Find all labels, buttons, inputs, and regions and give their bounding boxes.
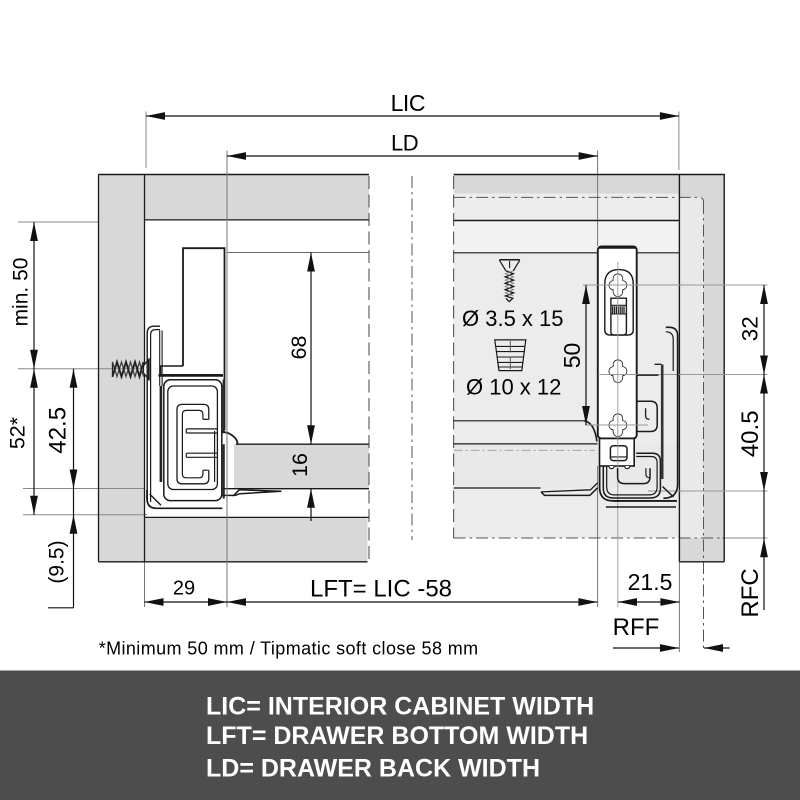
svg-text:(9.5): (9.5) bbox=[45, 540, 68, 583]
svg-text:42.5: 42.5 bbox=[44, 407, 71, 454]
svg-text:LIC= INTERIOR CABINET WIDTH: LIC= INTERIOR CABINET WIDTH bbox=[206, 692, 594, 720]
svg-text:32: 32 bbox=[737, 316, 762, 341]
svg-text:Ø 3.5 x 15: Ø 3.5 x 15 bbox=[462, 306, 564, 331]
svg-text:50: 50 bbox=[559, 343, 585, 369]
svg-text:52*: 52* bbox=[6, 416, 30, 449]
svg-text:LFT= DRAWER BOTTOM WIDTH: LFT= DRAWER BOTTOM WIDTH bbox=[206, 722, 588, 750]
svg-text:LIC: LIC bbox=[391, 90, 425, 116]
svg-text:*Minimum 50 mm / Tipmatic soft: *Minimum 50 mm / Tipmatic soft close 58 … bbox=[99, 639, 479, 659]
svg-text:min. 50: min. 50 bbox=[10, 258, 33, 327]
svg-text:LD= DRAWER BACK WIDTH: LD= DRAWER BACK WIDTH bbox=[206, 755, 540, 783]
svg-text:LFT= LIC -58: LFT= LIC -58 bbox=[310, 575, 452, 602]
svg-text:Ø 10 x 12: Ø 10 x 12 bbox=[466, 375, 561, 400]
svg-text:40.5: 40.5 bbox=[737, 410, 764, 457]
svg-text:LD: LD bbox=[391, 131, 418, 156]
svg-text:68: 68 bbox=[287, 336, 311, 360]
svg-text:RFF: RFF bbox=[613, 614, 660, 641]
svg-text:29: 29 bbox=[173, 578, 195, 600]
svg-text:16: 16 bbox=[288, 453, 312, 477]
svg-text:21.5: 21.5 bbox=[628, 569, 673, 595]
svg-text:RFC: RFC bbox=[737, 568, 764, 617]
